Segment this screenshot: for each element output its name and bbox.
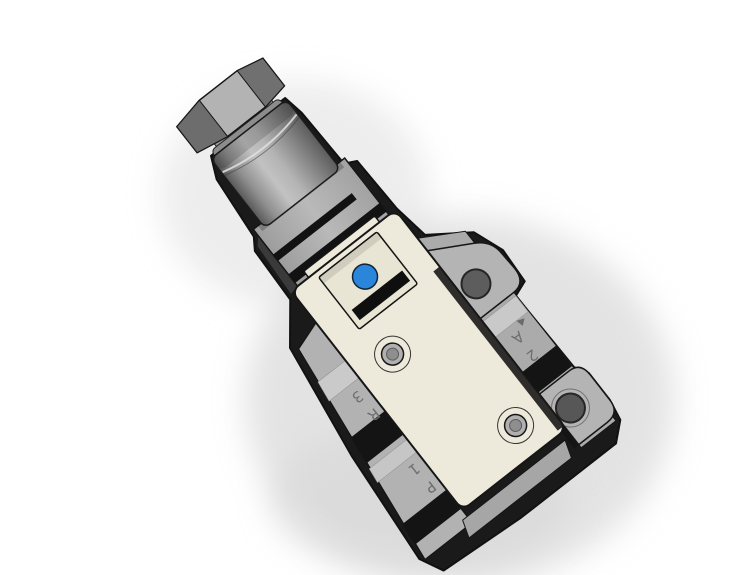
cad-render-canvas: 3 R 1 P A 2 — [0, 0, 744, 575]
valve-render: 3 R 1 P A 2 — [0, 0, 744, 575]
